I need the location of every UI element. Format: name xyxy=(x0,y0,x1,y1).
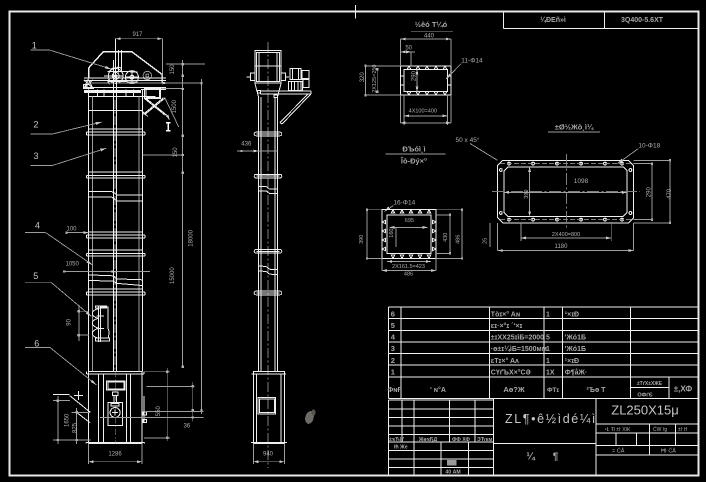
svg-text:Ф¶åЖ·: Ф¶åЖ· xyxy=(565,369,587,377)
svg-text:±,ХФ: ±,ХФ xyxy=(674,385,693,394)
svg-text:160: 160 xyxy=(389,229,395,238)
svg-text:±ŀ ŀf: ±ŀ ŀf xyxy=(678,427,687,433)
svg-text:Аө?Ж: Аө?Ж xyxy=(503,385,525,394)
svg-text:390: 390 xyxy=(524,190,530,199)
svg-text:1180: 1180 xyxy=(555,244,569,250)
svg-text:ĆW ŀg: ĆW ŀg xyxy=(653,426,667,433)
svg-text:825: 825 xyxy=(72,422,78,433)
svg-text:40 АМ: 40 АМ xyxy=(445,469,460,475)
svg-text:¼ÐEñ»ì: ¼ÐEñ»ì xyxy=(540,16,566,24)
svg-text:3: 3 xyxy=(34,151,39,161)
svg-text:4: 4 xyxy=(35,221,40,231)
svg-text:'Жó1Б: 'Жó1Б xyxy=(565,335,586,342)
svg-text:2X161.5=423: 2X161.5=423 xyxy=(392,264,425,270)
svg-text:290: 290 xyxy=(411,70,417,81)
svg-text:390: 390 xyxy=(359,235,365,244)
svg-text:СҮґЪХ×°СӘ: СҮґЪХ×°СӘ xyxy=(491,369,531,377)
svg-text:1: 1 xyxy=(32,41,37,51)
svg-text:940: 940 xyxy=(263,452,274,458)
svg-text:440: 440 xyxy=(424,33,435,39)
svg-text:320: 320 xyxy=(360,72,366,83)
svg-text:695: 695 xyxy=(405,218,414,224)
svg-text:917: 917 xyxy=(132,32,143,38)
svg-text:ɛТɪ×° Aʌ: ɛТɪ×° Aʌ xyxy=(491,357,519,365)
svg-text:486: 486 xyxy=(404,272,413,278)
svg-text:1650: 1650 xyxy=(64,413,70,427)
svg-text:5: 5 xyxy=(546,335,550,342)
svg-text:150: 150 xyxy=(173,147,179,158)
svg-text:¶: ¶ xyxy=(553,452,559,463)
svg-text:' ɴ°А: ' ɴ°А xyxy=(430,386,446,394)
svg-text:½êó Т¼ó: ½êó Т¼ó xyxy=(415,20,448,29)
svg-text:6: 6 xyxy=(34,339,39,349)
svg-text:486: 486 xyxy=(456,235,462,244)
svg-text:36: 36 xyxy=(184,424,191,430)
svg-text:ɛɪ·×°ɪ ´ʻ×ɪ: ɛɪ·×°ɪ ´ʻ×ɪ xyxy=(491,322,523,330)
svg-text:18000: 18000 xyxy=(189,229,195,246)
svg-text:= ĆÅ: = ĆÅ xyxy=(612,448,625,455)
svg-text:290: 290 xyxy=(646,187,652,198)
svg-text:¹×ɪÐ: ¹×ɪÐ xyxy=(565,358,579,365)
svg-text:1500: 1500 xyxy=(172,99,178,113)
svg-text:3: 3 xyxy=(391,344,395,353)
svg-text:470: 470 xyxy=(667,188,673,199)
svg-text:6: 6 xyxy=(391,309,395,318)
svg-text:¼: ¼ xyxy=(526,452,535,463)
svg-text:436: 436 xyxy=(241,142,252,148)
svg-text:550: 550 xyxy=(156,406,162,417)
svg-text:±ТґΧ±ΧЖЕ: ±ТґΧ±ΧЖЕ xyxy=(637,380,663,387)
svg-text:11-Φ14: 11-Φ14 xyxy=(461,57,483,64)
svg-text:1050: 1050 xyxy=(66,262,80,268)
svg-text:ОФґЄ: ОФґЄ xyxy=(637,391,652,398)
svg-text:16-Φ14: 16-Φ14 xyxy=(393,200,415,207)
svg-text:1286: 1286 xyxy=(108,452,122,458)
svg-text:¹Ł Ŧl ±ŀ XЖ: ¹Ł Ŧl ±ŀ XЖ xyxy=(605,427,631,433)
svg-text:1Х: 1Х xyxy=(546,370,555,377)
svg-text:2: 2 xyxy=(34,119,39,129)
svg-text:·ө±ɪ¼ìБ=1500мм: ·ө±ɪ¼ìБ=1500мм xyxy=(491,345,547,353)
svg-text:1098: 1098 xyxy=(574,178,589,185)
svg-text:±ҡЋ|Ү: ±ҡЋ|Ү xyxy=(389,437,404,443)
svg-text:25: 25 xyxy=(483,238,489,244)
svg-text:Ħŀ ĆÅ: Ħŀ ĆÅ xyxy=(661,448,676,455)
svg-text:5: 5 xyxy=(391,321,395,330)
svg-text:90: 90 xyxy=(67,318,73,325)
svg-text:Tòɪ×° Aɴ: Tòɪ×° Aɴ xyxy=(491,310,520,318)
svg-text:4X100=400: 4X100=400 xyxy=(409,109,437,115)
svg-text:2X400=800: 2X400=800 xyxy=(552,232,580,238)
svg-text:ФФ ХФ: ФФ ХФ xyxy=(452,437,470,443)
svg-text:1: 1 xyxy=(546,358,550,365)
svg-text:10-Φ18: 10-Φ18 xyxy=(638,143,660,150)
svg-text:±Ø½Жò¸ì¼: ±Ø½Жò¸ì¼ xyxy=(555,123,594,132)
svg-text:50 x 45°: 50 x 45° xyxy=(456,136,480,144)
svg-text:ЭЋҡм: ЭЋҡм xyxy=(477,437,492,443)
svg-text:100: 100 xyxy=(67,227,78,233)
svg-text:'Жó1Б: 'Жó1Б xyxy=(565,346,586,353)
svg-text:±ɪXX25ɪìБ=2000: ±ɪXX25ɪìБ=2000 xyxy=(491,335,544,342)
svg-text:1: 1 xyxy=(546,311,550,318)
svg-text:ФТɪ: ФТɪ xyxy=(547,387,559,394)
svg-text:150: 150 xyxy=(170,64,176,75)
svg-text:430: 430 xyxy=(443,233,449,242)
svg-text:1: 1 xyxy=(546,346,550,353)
svg-text:15000: 15000 xyxy=(170,267,176,284)
svg-text:¸ЖөҡҔД: ¸ЖөҡҔД xyxy=(417,437,437,443)
svg-text:ÐЪóì¸ì: ÐЪóì¸ì xyxy=(402,145,425,154)
svg-text:łħ Же: łħ Же xyxy=(394,444,408,450)
svg-text:¹×ɪÐ: ¹×ɪÐ xyxy=(565,311,579,318)
svg-text:2X125=250: 2X125=250 xyxy=(372,65,378,93)
svg-text:1: 1 xyxy=(391,368,395,377)
svg-text:²Ѣө Т: ²Ѣө Т xyxy=(587,387,607,394)
svg-text:Îò-Ðý×°: Îò-Ðý×° xyxy=(400,157,427,166)
svg-text:2: 2 xyxy=(391,356,395,365)
svg-text:ZL¶•ê½ìdé¼ì: ZL¶•ê½ìdé¼ì xyxy=(505,412,597,426)
svg-text:3Q400-5.6XΤ: 3Q400-5.6XΤ xyxy=(621,17,664,24)
svg-text:ΦɴҒ: ΦɴҒ xyxy=(387,387,401,394)
svg-text:5: 5 xyxy=(33,271,38,281)
svg-text:ZL250X15μ: ZL250X15μ xyxy=(611,403,678,418)
